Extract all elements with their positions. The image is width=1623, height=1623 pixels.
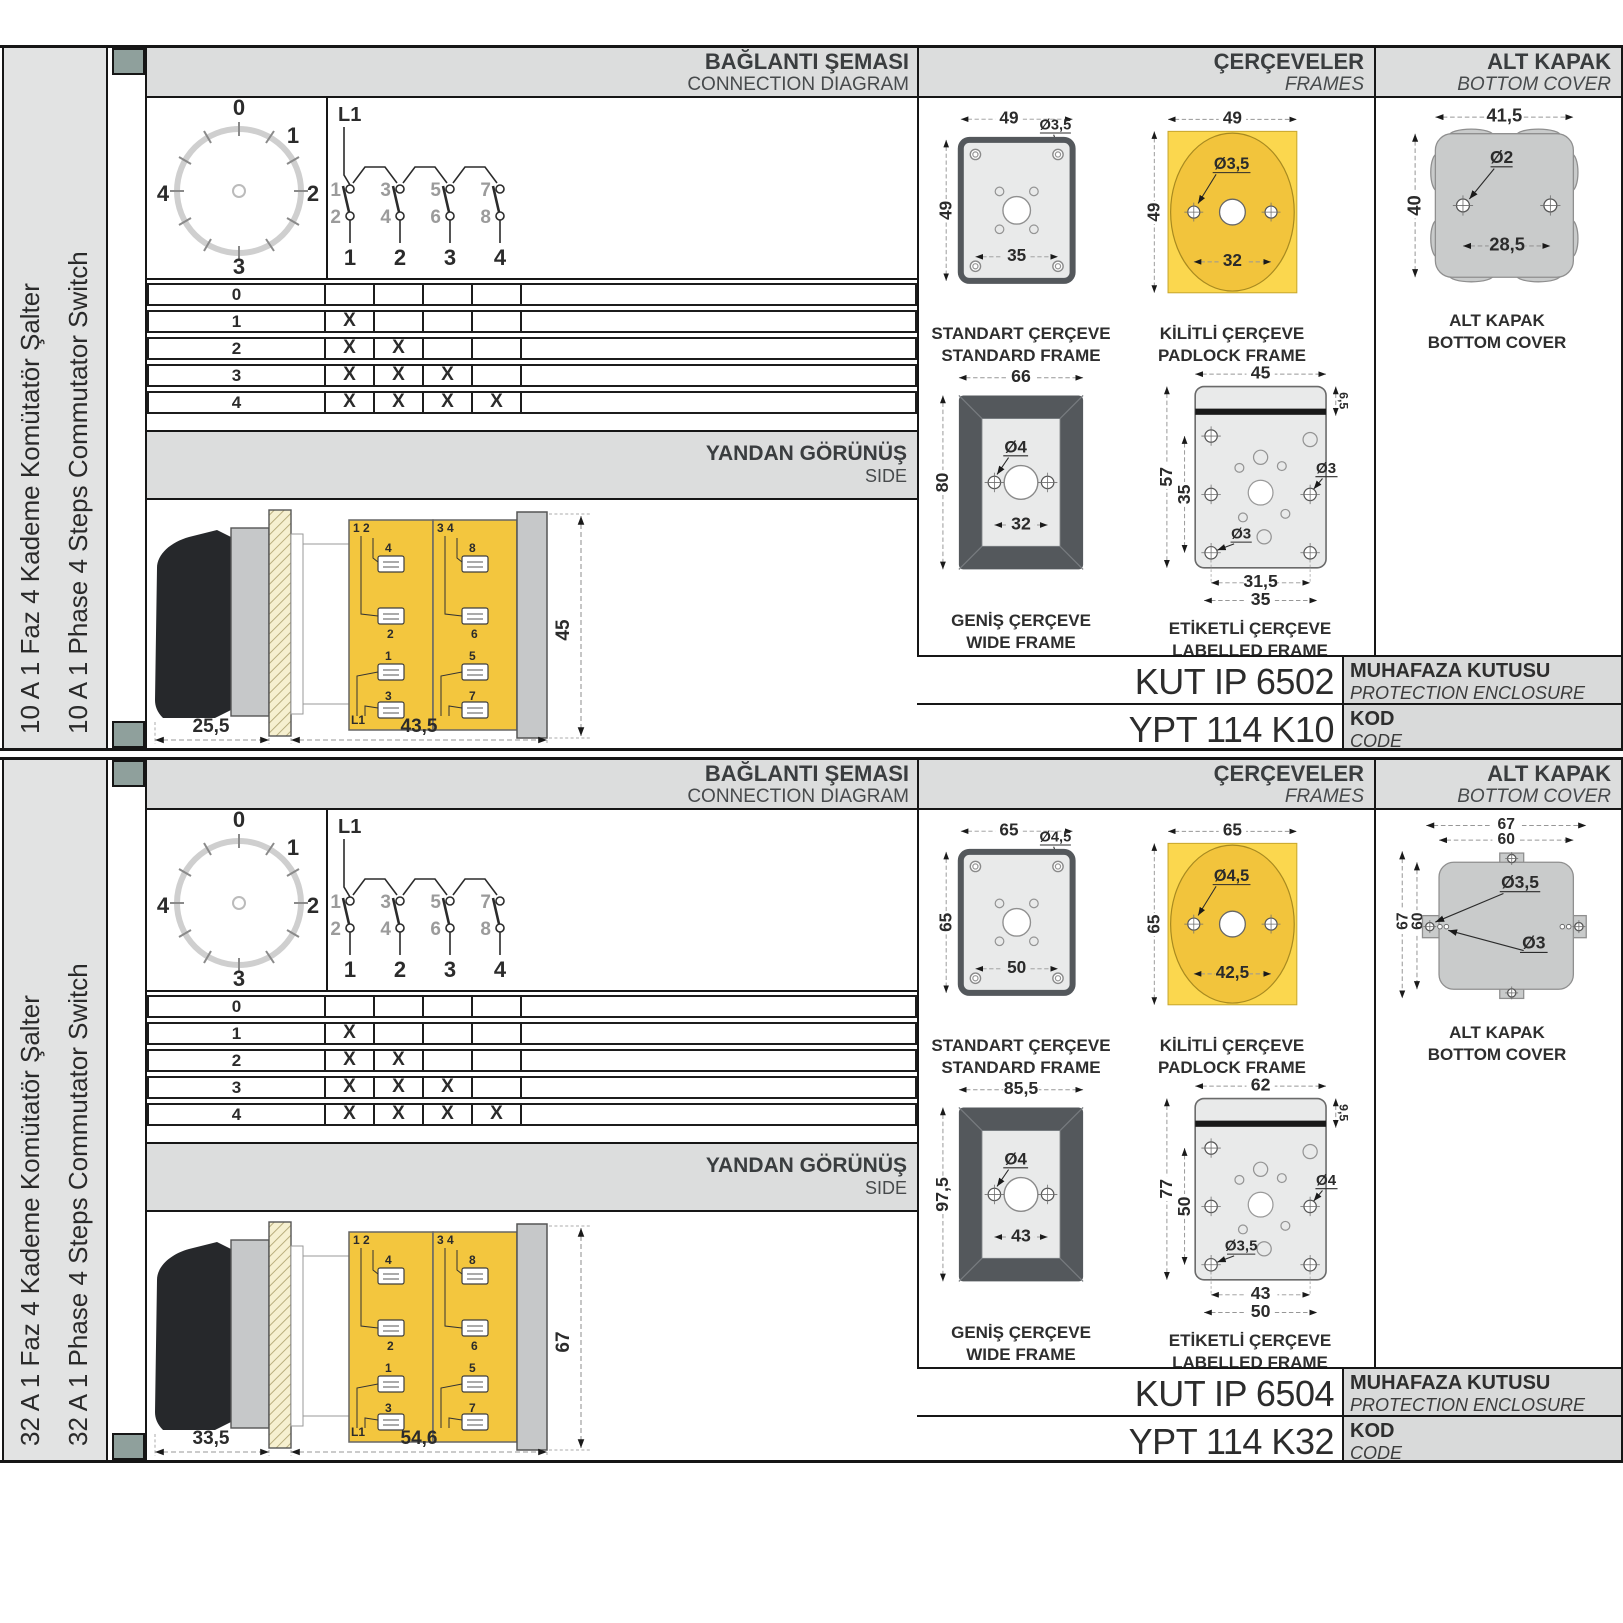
dim-depth: 25,5 (193, 716, 230, 737)
row-label: 2 (149, 339, 326, 358)
terminal-label: 7 (469, 689, 476, 703)
mark-cell: X (375, 366, 424, 385)
mark-cell: X (326, 1078, 375, 1097)
center-hole (1003, 197, 1031, 225)
dim-height: 77 (1156, 1179, 1176, 1199)
mark-cell (473, 285, 522, 304)
connection-schematic: L1 1 3 5 7 2 4 6 8 1 (330, 99, 915, 277)
hole-callout: Ø4 (1316, 1172, 1337, 1189)
center-hole (1003, 909, 1031, 937)
dial-pos-2: 2 (307, 893, 319, 918)
header-en: BOTTOM COVER (1457, 74, 1611, 95)
dim-width: 41,5 (1486, 106, 1522, 126)
mark-cell (424, 339, 473, 358)
center-hole (1220, 199, 1246, 225)
code-label: KOD CODE (1342, 1417, 1621, 1460)
frame-caption-tr: GENİŞ ÇERÇEVE (919, 611, 1123, 631)
terminal-label: 2 (387, 627, 394, 641)
terminal-label: L1 (351, 713, 365, 727)
header-en: CONNECTION DIAGRAM (687, 74, 909, 95)
end-cap (517, 512, 547, 738)
terminal-label: 3 4 (437, 1233, 454, 1247)
bottom-cover-drawing: 67 60 67 60 (1382, 818, 1612, 1016)
row-spacer (522, 997, 915, 1016)
column-divider-bc (1374, 810, 1376, 1367)
mark-cell: X (424, 393, 473, 412)
mark-cell (375, 997, 424, 1016)
mark-cell (326, 997, 375, 1016)
pole-num: 1 (344, 957, 356, 982)
product-title-en: 32 A 1 Phase 4 Steps Commutator Switch (56, 760, 100, 1460)
dim-height: 57 (1156, 467, 1176, 487)
terminal-label: 4 (385, 541, 392, 555)
terminal-label: 6 (471, 1339, 478, 1353)
wide-frame-block: 85,5 Ø4 97,5 43 GENİŞ ÇERÇEV (919, 1072, 1123, 1365)
contact-num: 2 (330, 207, 341, 228)
row-label: 4 (149, 393, 326, 412)
dim-height: 97,5 (932, 1177, 952, 1212)
bottom-cover-block: 67 60 67 60 (1382, 818, 1612, 1065)
side-view-header: YANDAN GÖRÜNÜŞ SIDE (147, 1142, 917, 1212)
side-header-tr: YANDAN GÖRÜNÜŞ (147, 442, 907, 466)
product-section-32a: 32 A 1 Faz 4 Kademe Komütatör Şalter 32 … (0, 757, 1623, 1463)
side-view-drawing: 1 2 3 4 4 8 2 6 1 5 3 7 L1 33,5 54,6 67 (151, 1216, 913, 1460)
side-header-en: SIDE (147, 466, 907, 487)
dim-span: 43 (1011, 1225, 1031, 1245)
dim-span: 28,5 (1489, 234, 1525, 255)
dim-height: 45 (553, 619, 574, 641)
hole-callout: Ø4,5 (1214, 867, 1249, 885)
header-frames: ÇERÇEVELER FRAMES (919, 760, 1372, 808)
terminal-label: 2 (387, 1339, 394, 1353)
dim-width: 66 (1011, 366, 1031, 386)
padlock-frame-block: 49 Ø3,5 49 32 KİLİTLİ ÇERÇEVE PADLOCK FR… (1125, 102, 1339, 366)
dial-pos-4: 4 (157, 181, 170, 206)
enclosure-label-en: PROTECTION ENCLOSURE (1350, 683, 1615, 703)
mark-cell: X (326, 1051, 375, 1070)
enclosure-label-tr: MUHAFAZA KUTUSU (1350, 1372, 1615, 1395)
frame-caption-tr: ETİKETLİ ÇERÇEVE (1131, 1331, 1369, 1351)
contact-num: 5 (430, 892, 441, 913)
row-spacer (522, 312, 915, 331)
section-main: BAĞLANTI ŞEMASI CONNECTION DIAGRAM ÇERÇE… (145, 48, 1623, 748)
table-row: 3 X X X (147, 1076, 917, 1099)
code-label-tr: KOD (1350, 1420, 1615, 1443)
terminal-label: 1 (385, 1361, 392, 1375)
row-spacer (522, 339, 915, 358)
dial-pos-0: 0 (233, 811, 245, 832)
terminal-label: 5 (469, 649, 476, 663)
row-label: 3 (149, 366, 326, 385)
hole-callout: Ø4 (1004, 437, 1027, 456)
standard-frame-block: 65 Ø4,5 65 50 (923, 814, 1119, 1078)
bottom-cover-block: 41,5 40 Ø2 28,5 AL (1382, 106, 1612, 353)
mark-cell (473, 997, 522, 1016)
dim-span: 50 (1007, 957, 1026, 977)
front-plate (231, 1240, 269, 1428)
mark-cell: X (473, 1105, 522, 1124)
padlock-frame-drawing: 49 Ø3,5 49 32 (1144, 102, 1320, 317)
frame-caption-tr: GENİŞ ÇERÇEVE (919, 1323, 1123, 1343)
frame-caption-en: WIDE FRAME (919, 1345, 1123, 1365)
header-en: BOTTOM COVER (1457, 786, 1611, 807)
mark-cell: X (424, 1105, 473, 1124)
standard-frame-block: 49 Ø3,5 49 35 (923, 102, 1119, 366)
contact-num: 7 (480, 892, 491, 913)
panel-section (269, 1222, 291, 1448)
switching-table: 0 1 X 2 X X (147, 995, 917, 1130)
center-hole (1248, 480, 1273, 505)
row-label: 4 (149, 1105, 326, 1124)
terminal-label: 8 (469, 1253, 476, 1267)
mark-cell (473, 1051, 522, 1070)
labelled-frame-drawing: 45 6,5 57 35 Ø3 (1150, 360, 1350, 612)
hole-callout: Ø2 (1490, 147, 1514, 167)
row-label: 0 (149, 997, 326, 1016)
switch-dial-cell: 0 1 2 3 4 (147, 98, 328, 280)
cover-caption-en: BOTTOM COVER (1382, 333, 1612, 353)
contact-num: 1 (330, 892, 341, 913)
switch-schematic-cell: L1 1 3 5 7 2 4 6 8 1 (328, 810, 917, 992)
mark-cell (326, 285, 375, 304)
frame-caption-tr: STANDART ÇERÇEVE (923, 1036, 1119, 1056)
mark-cell: X (375, 339, 424, 358)
side-header-en: SIDE (147, 1178, 907, 1199)
terminal-label: 4 (385, 1253, 392, 1267)
mark-cell: X (375, 393, 424, 412)
dim-inner-height: 50 (1174, 1196, 1194, 1216)
table-row: 2 X X (147, 1049, 917, 1072)
spine-strip (112, 760, 145, 1460)
dim-height: 80 (932, 472, 952, 492)
padlock-frame-drawing: 65 Ø4,5 65 42,5 (1144, 814, 1320, 1029)
phase-label: L1 (338, 816, 361, 838)
dial-pos-1: 1 (287, 835, 299, 860)
table-row: 2 X X (147, 337, 917, 360)
row-label: 1 (149, 312, 326, 331)
enclosure-label-tr: MUHAFAZA KUTUSU (1350, 660, 1615, 683)
product-title-en: 10 A 1 Phase 4 Steps Commutator Switch (56, 48, 100, 748)
terminal-label: 5 (469, 1361, 476, 1375)
header-tr: BAĞLANTI ŞEMASI (705, 50, 909, 74)
hole-callout: Ø3,5 (1225, 1238, 1258, 1255)
enclosure-row: KUT IP 6502 MUHAFAZA KUTUSU PROTECTION E… (917, 655, 1621, 703)
contact-num: 5 (430, 180, 441, 201)
hole-callout: Ø3 (1522, 933, 1546, 953)
pole-num: 4 (494, 957, 507, 982)
terminal-label: 7 (469, 1401, 476, 1415)
product-code: YPT 114 K10 (917, 705, 1342, 748)
dim-span2: 50 (1251, 1301, 1271, 1321)
mark-cell: X (326, 1105, 375, 1124)
contact-num: 4 (380, 919, 391, 940)
frame-caption-en: WIDE FRAME (919, 633, 1123, 653)
standard-frame-drawing: 49 Ø3,5 49 35 (935, 102, 1107, 317)
label-band (1195, 1121, 1326, 1127)
row-spacer (522, 1024, 915, 1043)
mark-cell: X (326, 366, 375, 385)
row-spacer (522, 366, 915, 385)
spine-square-top (112, 48, 145, 75)
center-hole (1220, 911, 1246, 937)
labelled-frame-block: 45 6,5 57 35 Ø3 (1131, 360, 1369, 661)
labelled-frame-block: 62 9,5 77 50 Ø4 (1131, 1072, 1369, 1373)
contact-num: 2 (330, 919, 341, 940)
header-frames: ÇERÇEVELER FRAMES (919, 48, 1372, 96)
row-spacer (522, 1078, 915, 1097)
dim-height: 65 (1144, 914, 1163, 934)
code-label: KOD CODE (1342, 705, 1621, 748)
frame-caption-tr: KİLİTLİ ÇERÇEVE (1125, 1036, 1339, 1056)
center-hole (1004, 466, 1038, 500)
dim-span: 42,5 (1216, 962, 1250, 982)
pole-num: 2 (394, 957, 406, 982)
product-sidebar: 10 A 1 Faz 4 Kademe Komütatör Şalter 10 … (2, 48, 108, 748)
hole-callout: Ø3 (1316, 460, 1336, 477)
header-tr: ÇERÇEVELER (1214, 762, 1364, 786)
mark-cell (473, 366, 522, 385)
header-en: FRAMES (1285, 786, 1364, 807)
front-plate (231, 528, 269, 716)
dim-height: 49 (1144, 203, 1163, 222)
switch-schematic-cell: L1 1 3 5 7 2 4 6 8 1 (328, 98, 917, 280)
dial-pos-3: 3 (233, 254, 245, 277)
row-spacer (522, 393, 915, 412)
mark-cell (473, 1078, 522, 1097)
contact-num: 6 (430, 207, 441, 228)
standard-frame-drawing: 65 Ø4,5 65 50 (935, 814, 1107, 1029)
switch-handle (155, 530, 231, 718)
padlock-frame-block: 65 Ø4,5 65 42,5 KİLİTLİ ÇERÇEVE PADLOCK … (1125, 814, 1339, 1078)
section-main: BAĞLANTI ŞEMASI CONNECTION DIAGRAM ÇERÇE… (145, 760, 1623, 1460)
dim-height: 49 (935, 201, 955, 220)
mark-cell (424, 1024, 473, 1043)
switch-dial-cell: 0 1 2 3 4 (147, 810, 328, 992)
dial-pos-1: 1 (287, 123, 299, 148)
code-label-en: CODE (1350, 731, 1615, 751)
dim-height: 65 (935, 912, 955, 932)
mark-cell: X (473, 393, 522, 412)
mark-cell: X (326, 1024, 375, 1043)
header-tr: ÇERÇEVELER (1214, 50, 1364, 74)
row-label: 1 (149, 1024, 326, 1043)
row-spacer (522, 285, 915, 304)
frame-caption-tr: KİLİTLİ ÇERÇEVE (1125, 324, 1339, 344)
dim-width: 49 (1223, 108, 1242, 128)
dim-height: 67 (553, 1331, 574, 1352)
header-tr: ALT KAPAK (1487, 50, 1611, 74)
side-view-header: YANDAN GÖRÜNÜŞ SIDE (147, 430, 917, 500)
spine-square-bottom (112, 1433, 145, 1460)
header-en: CONNECTION DIAGRAM (687, 786, 909, 807)
table-row: 4 X X X X (147, 1103, 917, 1126)
pole-num: 4 (494, 245, 507, 270)
end-cap (517, 1224, 547, 1450)
dial-pos-2: 2 (307, 181, 319, 206)
enclosure-label: MUHAFAZA KUTUSU PROTECTION ENCLOSURE (1342, 1369, 1621, 1415)
enclosure-row: KUT IP 6504 MUHAFAZA KUTUSU PROTECTION E… (917, 1367, 1621, 1415)
table-row: 3 X X X (147, 364, 917, 387)
mark-cell (424, 285, 473, 304)
mark-cell: X (326, 312, 375, 331)
dim-body: 54,6 (401, 1428, 438, 1449)
hole-callout: Ø4,5 (1040, 830, 1072, 846)
hole-callout: Ø4 (1004, 1149, 1027, 1168)
pole-num: 3 (444, 957, 456, 982)
dim-inner-width: 60 (1498, 831, 1516, 848)
row-label: 3 (149, 1078, 326, 1097)
code-row: YPT 114 K10 KOD CODE (917, 703, 1621, 748)
dim-band: 9,5 (1336, 1104, 1350, 1121)
terminal-label: 1 (385, 649, 392, 663)
mark-cell (473, 339, 522, 358)
label-band (1195, 409, 1326, 415)
bottom-cover-drawing: 41,5 40 Ø2 28,5 (1382, 106, 1612, 304)
hole-callout: Ø3,5 (1040, 118, 1072, 134)
hole-callout: Ø3,5 (1501, 872, 1539, 892)
wide-frame-block: 66 Ø4 80 32 GENİŞ ÇERÇEVE (919, 360, 1123, 653)
cover-caption-en: BOTTOM COVER (1382, 1045, 1612, 1065)
center-hole (1248, 1192, 1273, 1217)
mark-cell (473, 312, 522, 331)
header-connection-diagram: BAĞLANTI ŞEMASI CONNECTION DIAGRAM (147, 760, 917, 808)
table-row: 0 (147, 283, 917, 306)
code-label-tr: KOD (1350, 708, 1615, 731)
row-spacer (522, 1051, 915, 1070)
enclosure-code: KUT IP 6502 (917, 657, 1342, 703)
pole-num: 3 (444, 245, 456, 270)
spine-square-top (112, 760, 145, 787)
product-section-10a: 10 A 1 Faz 4 Kademe Komütatör Şalter 10 … (0, 45, 1623, 751)
contact-num: 7 (480, 180, 491, 201)
dim-depth: 33,5 (193, 1428, 230, 1449)
dim-width: 85,5 (1004, 1078, 1039, 1098)
contact-num: 4 (380, 207, 391, 228)
switching-table: 0 1 X 2 X X (147, 283, 917, 418)
header-en: FRAMES (1285, 74, 1364, 95)
frame-caption-tr: STANDART ÇERÇEVE (923, 324, 1119, 344)
dial-pos-3: 3 (233, 966, 245, 989)
labelled-frame-drawing: 62 9,5 77 50 Ø4 (1150, 1072, 1350, 1324)
dim-width: 49 (999, 108, 1018, 128)
code-row: YPT 114 K32 KOD CODE (917, 1415, 1621, 1460)
terminal-label: L1 (351, 1425, 365, 1439)
product-title-tr: 32 A 1 Faz 4 Kademe Komütatör Şalter (8, 760, 52, 1460)
terminal-label: 8 (469, 541, 476, 555)
terminal-label: 1 2 (353, 521, 370, 535)
terminal-label: 1 2 (353, 1233, 370, 1247)
terminal-label: 3 4 (437, 521, 454, 535)
mark-cell (375, 312, 424, 331)
terminal-label: 3 (385, 689, 392, 703)
table-row: 1 X (147, 310, 917, 333)
mark-cell: X (424, 366, 473, 385)
header-band: BAĞLANTI ŞEMASI CONNECTION DIAGRAM ÇERÇE… (147, 48, 1621, 98)
mark-cell: X (375, 1105, 424, 1124)
hole-callout: Ø3 (1231, 526, 1251, 543)
contact-num: 6 (430, 919, 441, 940)
position-dial: 0 1 2 3 4 (147, 811, 326, 989)
contact-num: 8 (480, 207, 491, 228)
dim-height: 40 (1404, 195, 1425, 215)
mark-cell (375, 285, 424, 304)
spine-square-bottom (112, 721, 145, 748)
panel-section (269, 510, 291, 736)
product-code: YPT 114 K32 (917, 1417, 1342, 1460)
table-row: 1 X (147, 1022, 917, 1045)
mark-cell (473, 1024, 522, 1043)
spine-strip (112, 48, 145, 748)
header-bottom-cover: ALT KAPAK BOTTOM COVER (1376, 48, 1619, 96)
dim-span: 32 (1011, 513, 1031, 533)
contact-num: 8 (480, 919, 491, 940)
dim-body: 43,5 (401, 716, 438, 737)
enclosure-label-en: PROTECTION ENCLOSURE (1350, 1395, 1615, 1415)
contact-num: 3 (380, 180, 391, 201)
cover-caption-tr: ALT KAPAK (1382, 311, 1612, 331)
side-header-tr: YANDAN GÖRÜNÜŞ (147, 1154, 907, 1178)
contact-num: 3 (380, 892, 391, 913)
code-label-en: CODE (1350, 1443, 1615, 1463)
table-row: 4 X X X X (147, 391, 917, 414)
table-row: 0 (147, 995, 917, 1018)
dial-pos-4: 4 (157, 893, 170, 918)
row-label: 2 (149, 1051, 326, 1070)
dim-span: 32 (1223, 250, 1242, 270)
hole-callout: Ø3,5 (1214, 155, 1249, 173)
enclosure-code: KUT IP 6504 (917, 1369, 1342, 1415)
center-hole (1004, 1178, 1038, 1212)
mark-cell: X (326, 339, 375, 358)
mark-cell (375, 1024, 424, 1043)
mark-cell: X (375, 1051, 424, 1070)
pole-num: 1 (344, 245, 356, 270)
product-sidebar: 32 A 1 Faz 4 Kademe Komütatör Şalter 32 … (2, 760, 108, 1460)
switch-handle (155, 1242, 231, 1430)
wide-frame-drawing: 66 Ø4 80 32 (931, 360, 1111, 604)
side-view-drawing: 1 2 3 4 4 8 2 6 1 5 3 7 L1 25,5 43,5 45 (151, 504, 913, 748)
dial-pos-0: 0 (233, 99, 245, 120)
wide-frame-drawing: 85,5 Ø4 97,5 43 (931, 1072, 1111, 1316)
dim-width: 65 (999, 820, 1019, 840)
enclosure-label: MUHAFAZA KUTUSU PROTECTION ENCLOSURE (1342, 657, 1621, 703)
cover-caption-tr: ALT KAPAK (1382, 1023, 1612, 1043)
dim-width: 62 (1251, 1075, 1271, 1095)
dim-width: 45 (1251, 363, 1271, 383)
mark-cell: X (326, 393, 375, 412)
connection-schematic: L1 1 3 5 7 2 4 6 8 1 (330, 811, 915, 989)
position-dial: 0 1 2 3 4 (147, 99, 326, 277)
header-connection-diagram: BAĞLANTI ŞEMASI CONNECTION DIAGRAM (147, 48, 917, 96)
header-band: BAĞLANTI ŞEMASI CONNECTION DIAGRAM ÇERÇE… (147, 760, 1621, 810)
terminal-label: 6 (471, 627, 478, 641)
dim-inner-height: 35 (1174, 484, 1194, 504)
dim-span: 35 (1007, 245, 1027, 265)
column-divider-bc (1374, 98, 1376, 655)
mark-cell (424, 997, 473, 1016)
dim-width: 65 (1223, 820, 1243, 840)
dim-span2: 35 (1251, 589, 1271, 609)
product-title-tr: 10 A 1 Faz 4 Kademe Komütatör Şalter (8, 48, 52, 748)
frame-caption-tr: ETİKETLİ ÇERÇEVE (1131, 619, 1369, 639)
mark-cell (424, 1051, 473, 1070)
row-spacer (522, 1105, 915, 1124)
header-tr: ALT KAPAK (1487, 762, 1611, 786)
mark-cell (424, 312, 473, 331)
terminal-label: 3 (385, 1401, 392, 1415)
header-bottom-cover: ALT KAPAK BOTTOM COVER (1376, 760, 1619, 808)
dim-band: 6,5 (1336, 392, 1350, 409)
